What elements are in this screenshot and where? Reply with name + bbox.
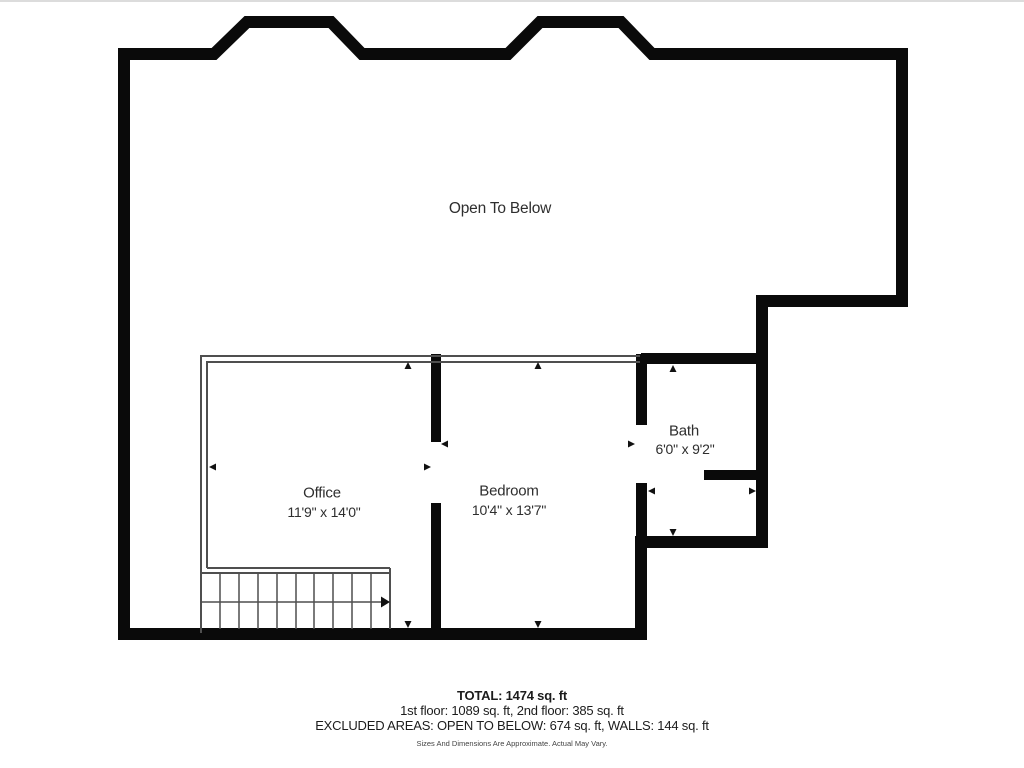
office-height-arrow-down — [405, 621, 412, 628]
office-room-label: Office — [303, 485, 341, 502]
bedroom-height-arrow-down — [535, 621, 542, 628]
stairs — [201, 573, 390, 629]
bath-width-arrow-left — [648, 488, 655, 495]
thin-wall-inner — [207, 362, 640, 568]
bath-partial-wall — [704, 470, 768, 480]
bedroom-room-label: Bedroom — [479, 483, 538, 500]
bath-height-arrow-up — [670, 365, 677, 372]
bath-room-dimensions: 6'0" x 9'2" — [655, 441, 714, 457]
bedroom-width-arrow-right — [628, 441, 635, 448]
open-to-below-label: Open To Below — [449, 200, 551, 218]
office-height-arrow-up — [405, 362, 412, 369]
floor-areas-text: 1st floor: 1089 sq. ft, 2nd floor: 385 s… — [0, 703, 1024, 718]
office-bedroom-wall-lower — [431, 503, 441, 634]
floor-plan-page: { "plan": { "open_area_label": "Open To … — [0, 0, 1024, 768]
office-room-dimensions: 11'9" x 14'0" — [287, 504, 360, 520]
stair-direction-arrow — [381, 597, 390, 608]
bedroom-bath-wall-lower — [636, 483, 647, 543]
thin-walls — [201, 356, 640, 633]
total-area-text: TOTAL: 1474 sq. ft — [0, 688, 1024, 703]
disclaimer-text: Sizes And Dimensions Are Approximate. Ac… — [0, 739, 1024, 749]
office-width-arrow-right — [424, 464, 431, 471]
bath-top-wall — [641, 353, 768, 364]
bedroom-bath-wall-upper — [636, 354, 647, 425]
bath-height-arrow-down — [670, 529, 677, 536]
office-width-arrow-left — [209, 464, 216, 471]
excluded-areas-text: EXCLUDED AREAS: OPEN TO BELOW: 674 sq. f… — [0, 718, 1024, 733]
stair-treads — [220, 573, 371, 629]
bedroom-width-arrow-left — [441, 441, 448, 448]
bedroom-room-dimensions: 10'4" x 13'7" — [472, 502, 546, 518]
bedroom-height-arrow-up — [535, 362, 542, 369]
exterior-wall-outline — [124, 22, 902, 634]
bath-width-arrow-right — [749, 488, 756, 495]
thin-wall-outer — [201, 356, 640, 633]
bath-room-label: Bath — [669, 423, 699, 440]
floor-plan-canvas — [0, 0, 1024, 768]
office-bedroom-wall-upper — [431, 354, 441, 442]
